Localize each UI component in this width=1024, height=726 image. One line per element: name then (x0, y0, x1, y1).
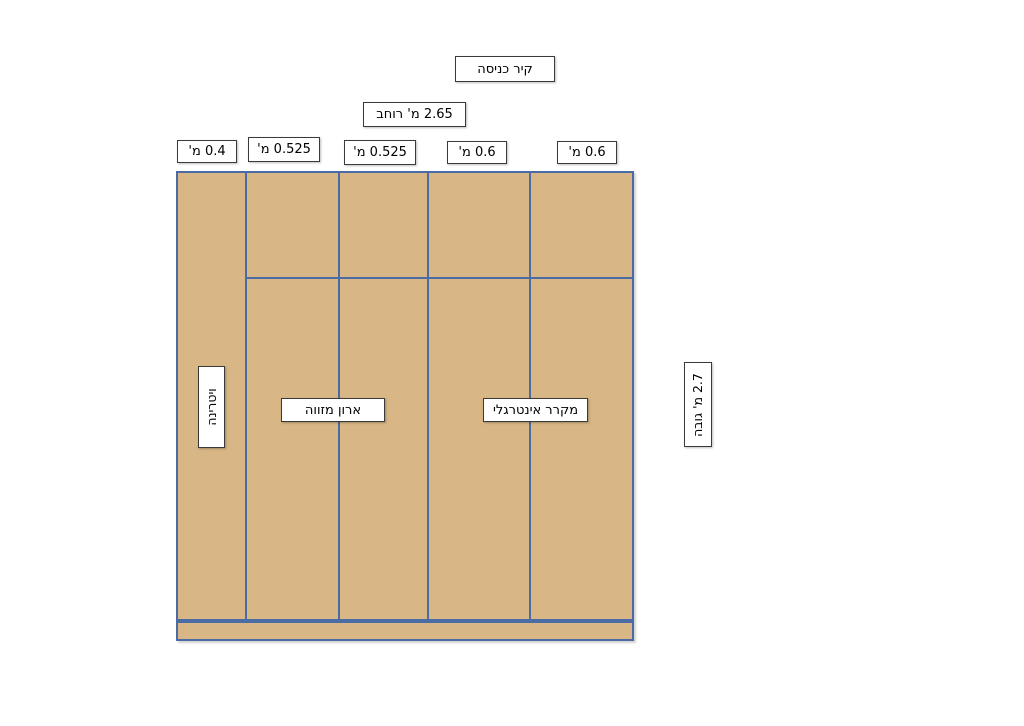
entrance-wall-label: קיר כניסה (455, 56, 555, 82)
total-height-label: 2.7 מ' גובה (684, 362, 712, 447)
vitrine-label: ויטרינה (198, 366, 225, 448)
column-dim-label: 0.525 מ' (248, 137, 320, 162)
total-width-label: 2.65 מ' רוחב (363, 102, 466, 127)
column-dim-label: 0.525 מ' (344, 140, 416, 165)
upper-cabinet-divider (245, 277, 632, 279)
total-height-label-text: 2.7 מ' גובה (692, 373, 705, 437)
column-divider (338, 173, 340, 619)
cabinet-body (176, 171, 634, 621)
cabinet-plinth (176, 621, 634, 641)
vitrine-label-text: ויטרינה (205, 388, 218, 425)
cabinet-elevation-diagram: קיר כניסה 2.65 מ' רוחב 0.4 מ' 0.525 מ' 0… (0, 0, 1024, 726)
column-dim-label: 0.6 מ' (557, 141, 617, 164)
column-divider (529, 173, 531, 619)
pantry-cabinet-label: ארון מזווה (281, 398, 385, 422)
column-divider (427, 173, 429, 619)
column-divider (245, 173, 247, 619)
column-dim-label: 0.4 מ' (177, 140, 237, 163)
column-dim-label: 0.6 מ' (447, 141, 507, 164)
integrated-fridge-label: מקרר אינטרגלי (483, 398, 588, 422)
